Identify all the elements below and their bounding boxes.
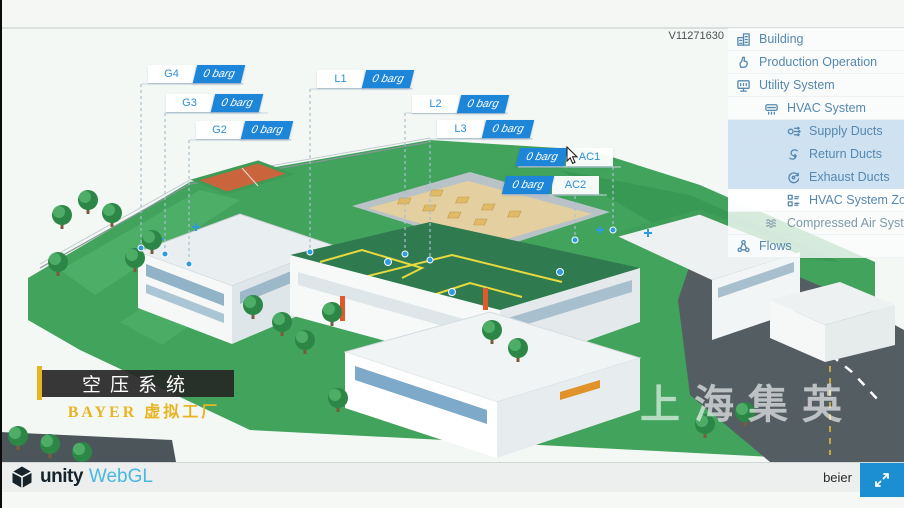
label-value: 0 barg: [362, 70, 414, 88]
watermark-text: 上海集英: [640, 372, 904, 430]
sidebar-item-exhaust-ducts[interactable]: Exhaust Ducts: [728, 166, 904, 189]
scene-subtitle: BAYER 虚拟工厂: [44, 398, 244, 422]
label-id: L3: [437, 120, 484, 138]
system-tree-sidebar: Building Production Operation Utility Sy…: [728, 28, 904, 258]
production-operation-icon: [736, 54, 752, 70]
sidebar-item-label: Return Ducts: [809, 147, 882, 161]
exhaust-ducts-icon: [786, 169, 802, 185]
label-id: G4: [148, 65, 195, 83]
pressure-label-l3[interactable]: L3 0 barg: [437, 120, 532, 139]
label-value: 0 barg: [211, 94, 263, 112]
pressure-label-l2[interactable]: L2 0 barg: [412, 95, 507, 114]
label-value: 0 barg: [482, 120, 534, 138]
pressure-label-l1[interactable]: L1 0 barg: [317, 70, 412, 89]
app-window: 上海集英 G4 0 barg G3 0 barg G2 0 barg L1 0 …: [0, 0, 904, 508]
label-id: L1: [317, 70, 364, 88]
fullscreen-button[interactable]: [860, 463, 904, 497]
sidebar-item-building[interactable]: Building: [728, 28, 904, 51]
building-icon: [736, 31, 752, 47]
sidebar-item-utility-system[interactable]: Utility System: [728, 74, 904, 97]
sidebar-item-label: Exhaust Ducts: [809, 170, 890, 184]
label-id: L2: [412, 95, 459, 113]
compressed-air-icon: [764, 215, 780, 231]
label-value: 0 barg: [502, 176, 554, 194]
mouse-cursor: [566, 146, 580, 166]
sidebar-item-label: Compressed Air System: [787, 216, 904, 230]
unity-wordmark: unity: [40, 466, 83, 488]
sidebar-item-label: HVAC System: [787, 101, 866, 115]
sidebar-item-label: Flows: [759, 239, 792, 253]
label-value: 0 barg: [193, 65, 245, 83]
unity-logo: unity WebGL: [10, 465, 153, 489]
pressure-label-ac2[interactable]: 0 barg AC2: [504, 176, 599, 195]
sidebar-item-hvac-system-zones[interactable]: HVAC System Zones: [728, 189, 904, 212]
label-id: G2: [196, 121, 243, 139]
pressure-label-g2[interactable]: G2 0 barg: [196, 121, 291, 140]
sidebar-item-label: Building: [759, 32, 803, 46]
hvac-zones-icon: [786, 192, 802, 208]
sidebar-item-hvac-system[interactable]: HVAC System: [728, 97, 904, 120]
label-id: AC2: [552, 176, 599, 194]
hvac-system-icon: [764, 100, 780, 116]
sidebar-item-label: Supply Ducts: [809, 124, 883, 138]
sidebar-item-compressed-air-system[interactable]: Compressed Air System: [728, 212, 904, 235]
player-name-label: beier: [823, 470, 852, 485]
sidebar-item-flows[interactable]: Flows: [728, 235, 904, 258]
webgl-wordmark: WebGL: [89, 466, 153, 488]
sidebar-item-label: Production Operation: [759, 55, 877, 69]
version-label: V11271630: [604, 30, 724, 42]
sidebar-item-return-ducts[interactable]: Return Ducts: [728, 143, 904, 166]
sidebar-item-label: HVAC System Zones: [809, 193, 904, 207]
unity-cube-icon: [10, 465, 34, 489]
sidebar-item-production-operation[interactable]: Production Operation: [728, 51, 904, 74]
unity-footer-bar: unity WebGL beier: [0, 462, 904, 492]
fullscreen-expand-icon: [873, 471, 891, 489]
screen-edge-stripe: [0, 0, 2, 508]
page-background: [0, 491, 904, 508]
sidebar-item-supply-ducts[interactable]: Supply Ducts: [728, 120, 904, 143]
pressure-label-g3[interactable]: G3 0 barg: [166, 94, 261, 113]
label-value: 0 barg: [516, 148, 568, 166]
label-id: G3: [166, 94, 213, 112]
label-value: 0 barg: [241, 121, 293, 139]
return-ducts-icon: [786, 146, 802, 162]
label-value: 0 barg: [457, 95, 509, 113]
flows-icon: [736, 238, 752, 254]
pressure-label-g4[interactable]: G4 0 barg: [148, 65, 243, 84]
sidebar-item-label: Utility System: [759, 78, 835, 92]
scene-title: 空压系统: [42, 370, 234, 397]
utility-system-icon: [736, 77, 752, 93]
supply-ducts-icon: [786, 123, 802, 139]
